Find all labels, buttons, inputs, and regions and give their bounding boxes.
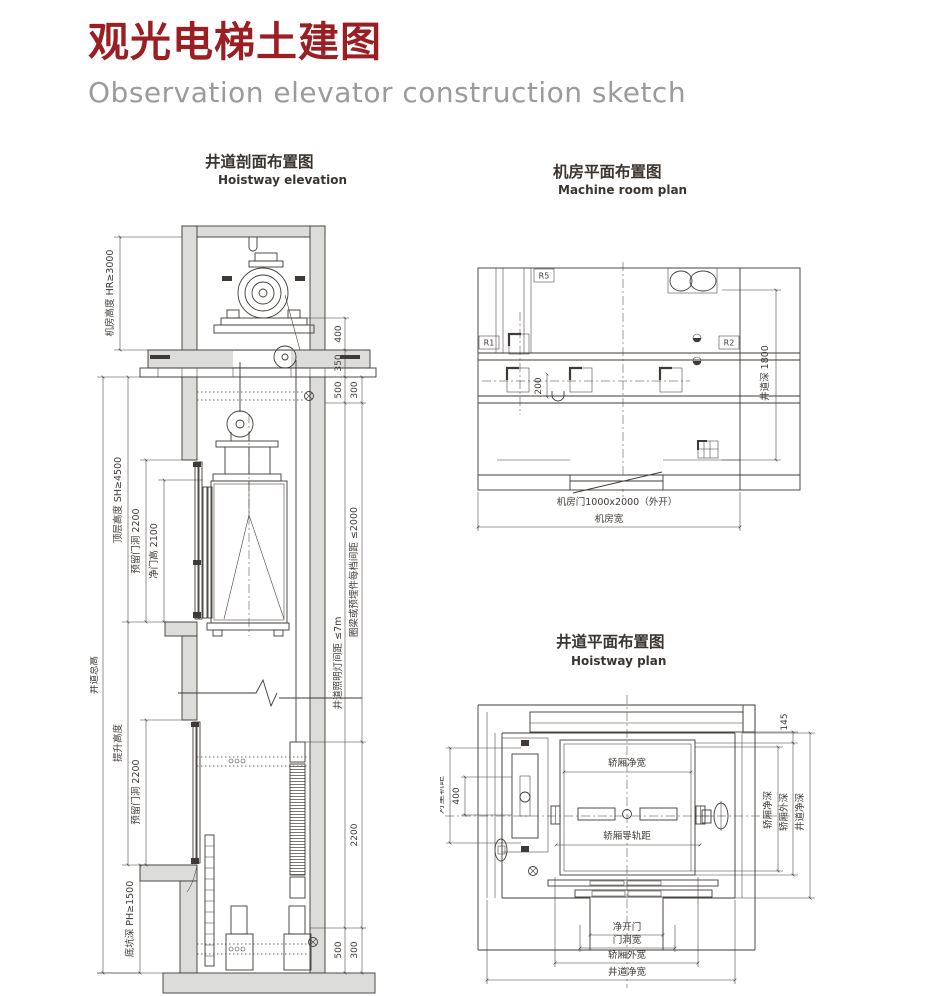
pit-ladder (205, 835, 214, 966)
counterweight-dimensions: 对重轨距 400 (440, 748, 521, 843)
vent-grille (698, 441, 718, 458)
grid-labels: R5 R1 R2 (479, 269, 739, 349)
dim-hoistway-clear-depth: 井道净深 (794, 793, 806, 832)
hoistway-plan-subtitle: Hoistway plan (571, 654, 666, 668)
dim-car-outer-width: 轿厢外宽 (608, 949, 647, 961)
width-dimensions: 净开门 门洞宽 轿厢外宽 井道净宽 (487, 877, 735, 984)
label-r2: R2 (724, 339, 735, 348)
machine-room-outline (478, 268, 800, 490)
counterweight (290, 742, 305, 898)
deflector-sheave (240, 346, 296, 742)
dim-embed-spacing: 圈梁或预埋件每档间距 ≤2000 (348, 507, 360, 637)
page-title: 观光电梯土建图 (88, 8, 382, 68)
centerlines (482, 262, 690, 497)
dim-cwt-rail-gauge: 对重轨距 (440, 776, 446, 815)
dim-car-clear-depth: 轿厢净深 (762, 791, 774, 830)
dim-clear-door-opening: 净开门 (613, 921, 642, 933)
dim-door-opening-width: 门洞宽 (613, 934, 642, 946)
dim-car-outer-depth: 轿厢外深 (778, 793, 790, 832)
dim-300-top: 300 (350, 381, 360, 398)
dim-hoistway-depth: 井道深 1800 (759, 345, 771, 401)
dim-145: 145 (780, 713, 790, 730)
landing-door-top (193, 462, 202, 619)
label-r1: R1 (484, 339, 495, 348)
dim-machine-room-height: 机房高度 HR≥3000 (104, 250, 116, 337)
dim-top-floor-height: 顶层高度 SH≥4500 (112, 457, 124, 543)
dim-hoistway-clear-width: 井道净宽 (608, 966, 647, 978)
dim-total-height: 井道总高 (90, 656, 100, 694)
dim-lighting-spacing: 井道照明灯间距 ≤7m (332, 617, 344, 710)
depth-dimensions: 145 轿厢净深 轿厢外深 井道净深 (691, 713, 815, 898)
dim-clear-door-height: 净门高 2100 (148, 523, 160, 579)
rope-hitch (249, 237, 257, 251)
traction-machine (214, 253, 314, 350)
pit-floor (163, 973, 375, 993)
dim-300-bottom: 300 (350, 941, 360, 958)
page: 观光电梯土建图 Observation elevator constructio… (0, 0, 942, 996)
machine-room-door (478, 460, 800, 493)
hoistway-plan-title: 井道平面布置图 (556, 630, 665, 652)
hoistway-outline (478, 705, 755, 950)
dim-200: 200 (534, 377, 544, 394)
dim-350: 350 (334, 354, 344, 371)
dim-400: 400 (452, 787, 462, 804)
machine-room-subtitle: Machine room plan (558, 183, 687, 197)
dim-room-width: 机房宽 (595, 513, 624, 525)
label-r5: R5 (539, 272, 550, 281)
dim-500-top: 500 (334, 381, 344, 398)
car-door-panel (203, 487, 207, 618)
dim-400: 400 (334, 325, 344, 342)
door-sill-plan (548, 880, 718, 897)
dim-pit-depth: 底坑深 PH≥1500 (124, 881, 136, 958)
dim-500-bottom: 500 (334, 941, 344, 958)
counterweight-buffer (284, 906, 311, 970)
machine-room-title: 机房平面布置图 (553, 160, 662, 182)
car-floor (207, 623, 289, 630)
page-subtitle: Observation elevator construction sketch (88, 76, 686, 109)
car-buffer (226, 906, 253, 970)
counterweight-plan (495, 738, 548, 876)
dim-lifting-height: 提升高度 (112, 724, 124, 763)
elevation-title: 井道剖面布置图 (205, 150, 314, 172)
dim-door-opening-bottom: 预留门洞 2200 (130, 759, 142, 824)
elevator-car (203, 411, 289, 636)
machine-room-dimensions: 井道深 1800 机房门1000x2000（外开） 机房宽 (478, 290, 781, 531)
hook-dimension: 200 (534, 374, 564, 401)
dim-door-opening-top: 预留门洞 2200 (130, 508, 142, 573)
label-machine-room-door: 机房门1000x2000（外开） (557, 496, 677, 508)
hoistway-elevation-drawing: 井道总高 机房高度 HR≥3000 顶层高度 SH≥4500 提升高度 预留门洞… (90, 215, 380, 996)
machine-room-plan-drawing: R5 R1 R2 200 (440, 255, 815, 545)
hoistway-plan-drawing: 轿厢净宽 轿厢导轨距 (440, 685, 820, 996)
dim-2200: 2200 (350, 823, 360, 846)
controller-outline (668, 268, 717, 293)
car-plan: 轿厢净宽 轿厢导轨距 (551, 740, 705, 875)
elevation-subtitle: Hoistway elevation (218, 173, 347, 187)
